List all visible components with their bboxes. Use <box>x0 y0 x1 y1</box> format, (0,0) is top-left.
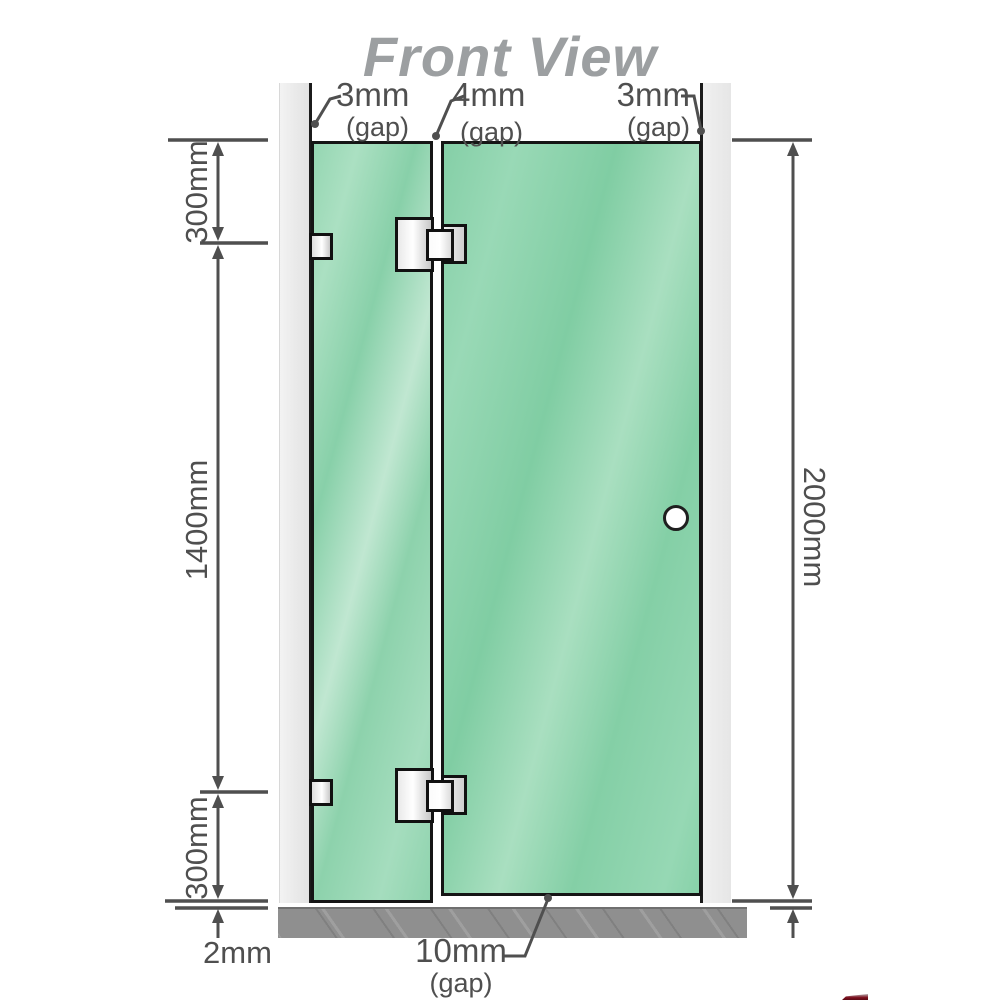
dimension-label-1400mm: 1400mm <box>179 460 215 581</box>
gap-label-top-right: 3mm (gap) <box>590 78 690 141</box>
gap-label-top-left: 3mm (gap) <box>336 78 409 141</box>
gap-value-bottom: 10mm <box>396 934 526 969</box>
dimension-label-2mm: 2mm <box>203 935 272 971</box>
front-view-diagram: Front View <box>0 0 1000 1000</box>
right-wall <box>700 83 731 903</box>
gap-value-top-middle: 4mm <box>452 78 525 113</box>
gap-value-top-left: 3mm <box>336 78 409 113</box>
gap-sub-top-right: (gap) <box>590 113 690 141</box>
gap-label-top-middle: 4mm (gap) <box>452 78 525 146</box>
left-wall <box>279 83 312 903</box>
wall-bracket-top <box>309 233 333 260</box>
wall-bracket-bottom <box>309 779 333 806</box>
top-hinge-center-clamp <box>426 229 454 261</box>
bottom-hinge-center-clamp <box>426 780 454 812</box>
corner-logo-fragment <box>842 994 868 1000</box>
gap-sub-top-left: (gap) <box>336 113 409 141</box>
dimension-label-2000mm: 2000mm <box>796 467 832 588</box>
dimension-label-bottom-300mm: 300mm <box>179 796 215 899</box>
gap-value-top-right: 3mm <box>590 78 690 113</box>
dimension-label-top-300mm: 300mm <box>179 140 215 243</box>
gap-sub-bottom: (gap) <box>396 969 526 997</box>
gap-label-bottom: 10mm (gap) <box>396 934 526 997</box>
door-knob <box>663 505 689 531</box>
gap-sub-top-middle: (gap) <box>452 118 525 146</box>
